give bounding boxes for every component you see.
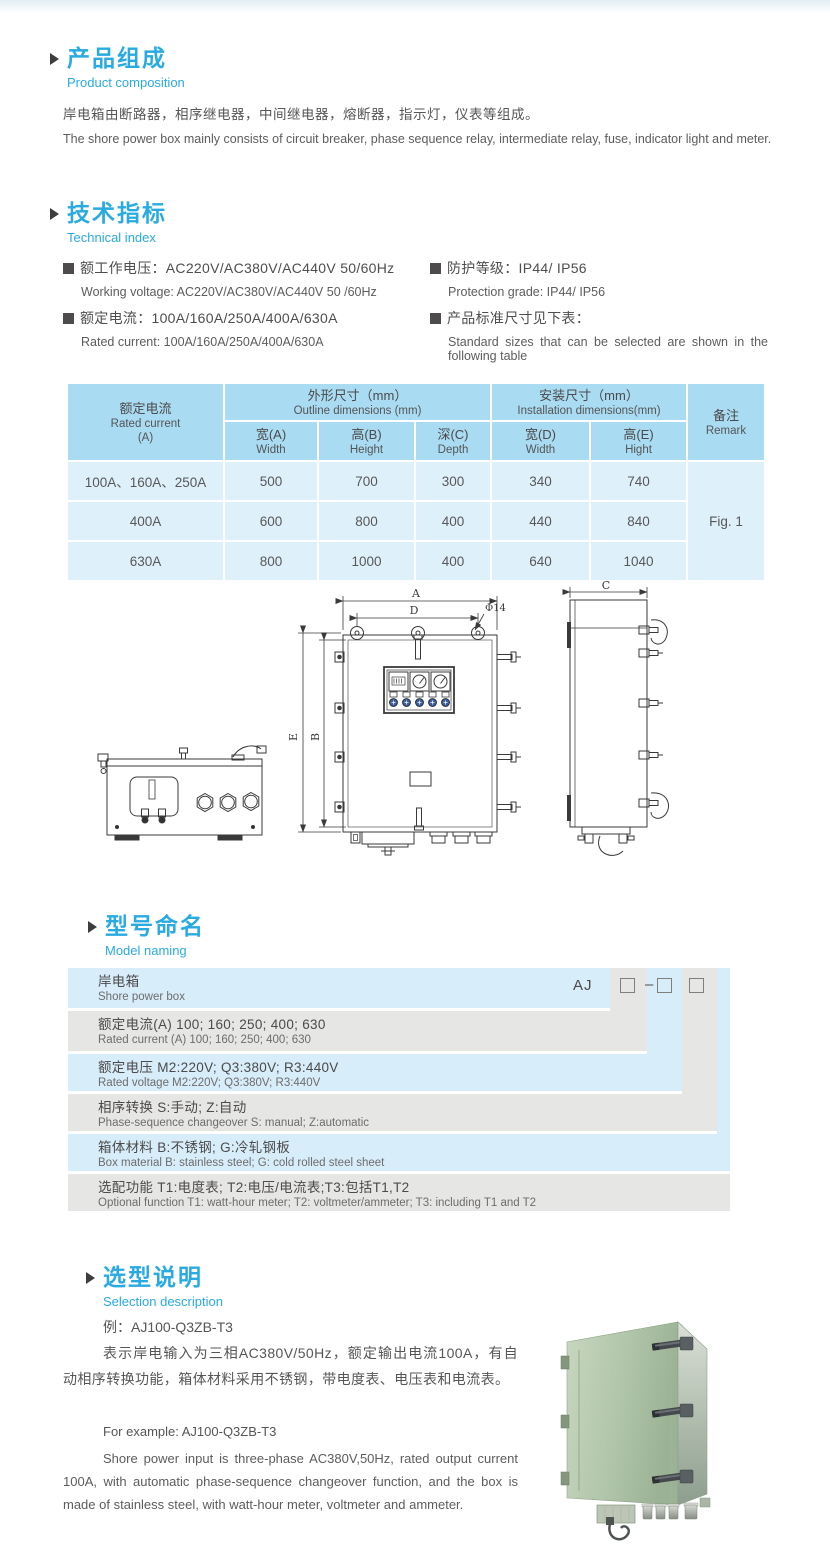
model-code-dash: – (645, 976, 653, 993)
model-code-prefix: AJ (573, 977, 593, 994)
cell-depth: 400 (416, 502, 490, 540)
cell-install-height: 840 (591, 502, 686, 540)
nameplate (410, 772, 431, 786)
model-naming-diagram: 岸电箱Shore power box 额定电流(A) 100; 160; 250… (68, 966, 730, 1211)
spec-protection-grade-en: Protection grade: IP44/ IP56 (448, 285, 770, 299)
naming-row-box-material: 箱体材料 B:不锈钢; G:冷轧钢板Box material B: stainl… (68, 1134, 730, 1171)
bottom-hardware (597, 1498, 710, 1539)
dimension-lines-front (298, 596, 497, 832)
spec-column-left: 额工作电压：AC220V/AC380V/AC440V 50/60Hz Worki… (63, 258, 423, 358)
table-row: 630A 800 1000 400 640 1040 (68, 542, 764, 580)
col-header-width-a: 宽(A)Width (225, 422, 317, 460)
cell-install-width: 340 (492, 462, 589, 500)
dim-label-A: A (411, 587, 421, 600)
dimension-table: 额定电流 Rated current (A) 外形尺寸（mm） Outline … (66, 382, 766, 582)
col-header-width-d: 宽(D)Width (492, 422, 589, 460)
page-top-gradient (0, 0, 830, 13)
figure-side-view (567, 600, 669, 855)
naming-row-shore-power-box: 岸电箱Shore power box (68, 968, 610, 1008)
spec-label: 防护等级：IP44/ IP56 (447, 258, 587, 278)
cell-width: 600 (225, 502, 317, 540)
dim-label-C: C (602, 580, 610, 592)
page-title-en: Product composition (67, 75, 185, 90)
section-title-en: Technical index (67, 230, 167, 245)
section-title-en: Model naming (105, 943, 205, 958)
cell-current: 100A、160A、250A (68, 462, 223, 500)
naming-row-rated-current: 额定电流(A) 100; 160; 250; 400; 630Rated cur… (68, 1011, 647, 1051)
selection-body-en: Shore power input is three-phase AC380V,… (63, 1447, 518, 1516)
selection-example-zh: 例：AJ100-Q3ZB-T3 (103, 1317, 233, 1337)
spec-protection-grade: 防护等级：IP44/ IP56 (430, 258, 770, 278)
section-technical-index-header: 技术指标 Technical index (50, 200, 167, 245)
section-product-composition-header: 产品组成 Product composition (50, 45, 185, 90)
spec-standard-sizes-en: Standard sizes that can be selected are … (448, 335, 768, 363)
table-row: 400A 600 800 400 440 840 (68, 502, 764, 540)
spec-label: 产品标准尺寸见下表： (447, 308, 590, 328)
section-title: 选型说明 (103, 1264, 223, 1290)
product-photo (540, 1292, 825, 1564)
section-arrow-icon (88, 921, 97, 933)
dimension-labels-front: A D Φ14 E B (287, 587, 506, 741)
col-header-installation: 安装尺寸（mm） Installation dimensions(mm) (492, 384, 686, 420)
cell-height: 700 (319, 462, 414, 500)
naming-row-optional-function: 选配功能 T1:电度表; T2:电压/电流表;T3:包括T1,T2Optiona… (68, 1174, 730, 1211)
meter-panel (384, 667, 454, 713)
cell-current: 400A (68, 502, 223, 540)
selection-example-en: For example: AJ100-Q3ZB-T3 (103, 1424, 276, 1439)
col-header-rated-current: 额定电流 Rated current (A) (68, 384, 223, 460)
spec-column-right: 防护等级：IP44/ IP56 Protection grade: IP44/ … (430, 258, 770, 372)
cell-height: 1000 (319, 542, 414, 580)
dim-label-B: B (309, 733, 322, 741)
cell-width: 500 (225, 462, 317, 500)
dim-label-phi14: Φ14 (485, 603, 506, 614)
col-header-hight-e: 高(E)Hight (591, 422, 686, 460)
col-header-remark: 备注 Remark (688, 384, 764, 460)
bullet-square-icon (63, 313, 74, 324)
spec-label: 额工作电压：AC220V/AC380V/AC440V 50/60Hz (80, 258, 394, 278)
technical-drawing: A D Φ14 E B (85, 580, 705, 885)
selection-body-zh: 表示岸电输入为三相AC380V/50Hz，额定输出电流100A，有自动相序转换功… (63, 1340, 518, 1392)
col-header-depth-c: 深(C)Depth (416, 422, 490, 460)
figure-front-view (335, 627, 521, 856)
section-title-en: Selection description (103, 1294, 223, 1309)
section-title: 技术指标 (67, 200, 167, 226)
spec-standard-sizes: 产品标准尺寸见下表： (430, 308, 770, 328)
cell-current: 630A (68, 542, 223, 580)
spec-working-voltage: 额工作电压：AC220V/AC380V/AC440V 50/60Hz (63, 258, 423, 278)
spec-rated-current: 额定电流：100A/160A/250A/400A/630A (63, 308, 423, 328)
naming-row-phase-sequence: 相序转换 S:手动; Z:自动Phase-sequence changeover… (68, 1094, 717, 1131)
cell-install-height: 740 (591, 462, 686, 500)
cell-height: 800 (319, 502, 414, 540)
cell-remark: Fig. 1 (688, 462, 764, 580)
model-code-box-2 (657, 978, 672, 993)
dim-label-D: D (410, 604, 419, 617)
bottom-hook (609, 1524, 628, 1539)
col-header-outline: 外形尺寸（mm） Outline dimensions (mm) (225, 384, 490, 420)
cell-depth: 300 (416, 462, 490, 500)
section-selection-description-header: 选型说明 Selection description (86, 1264, 223, 1309)
spec-working-voltage-en: Working voltage: AC220V/AC380V/AC440V 50… (81, 285, 423, 299)
cell-install-height: 1040 (591, 542, 686, 580)
naming-column-4 (717, 968, 730, 1171)
figure-bottom-view (98, 746, 266, 840)
bullet-square-icon (63, 263, 74, 274)
cell-install-width: 640 (492, 542, 589, 580)
section-model-naming-header: 型号命名 Model naming (88, 913, 205, 958)
cell-width: 800 (225, 542, 317, 580)
cell-depth: 400 (416, 542, 490, 580)
section-arrow-icon (50, 208, 59, 220)
cell-install-width: 440 (492, 502, 589, 540)
bullet-square-icon (430, 263, 441, 274)
col-header-height-b: 高(B)Height (319, 422, 414, 460)
model-code-box-3 (689, 978, 704, 993)
dim-label-E: E (287, 733, 300, 741)
product-composition-text-en: The shore power box mainly consists of c… (63, 132, 803, 146)
page-title: 产品组成 (67, 45, 185, 71)
section-title: 型号命名 (105, 913, 205, 939)
table-row: 100A、160A、250A 500 700 300 340 740 Fig. … (68, 462, 764, 500)
spec-rated-current-en: Rated current: 100A/160A/250A/400A/630A (81, 335, 423, 349)
product-composition-text-zh: 岸电箱由断路器，相序继电器，中间继电器，熔断器，指示灯，仪表等组成。 (63, 103, 783, 123)
model-code-box-1 (620, 978, 635, 993)
section-arrow-icon (50, 53, 59, 65)
spec-label: 额定电流：100A/160A/250A/400A/630A (80, 308, 338, 328)
naming-row-rated-voltage: 额定电压 M2:220V; Q3:380V; R3:440VRated volt… (68, 1054, 682, 1091)
section-arrow-icon (86, 1272, 95, 1284)
bullet-square-icon (430, 313, 441, 324)
